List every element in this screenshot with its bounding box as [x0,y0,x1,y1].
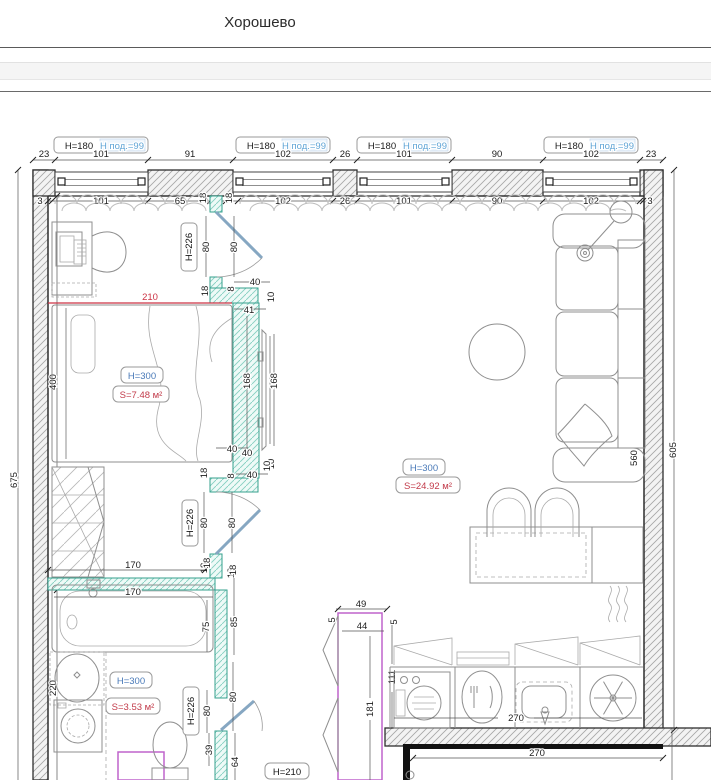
dim-overall-right: 605 [668,442,679,458]
door2-40b: 40 [247,470,258,481]
hall-wardrobe: 49 5 44 5 111 181 [323,599,400,780]
ward-44: 44 [357,621,368,632]
bath-18b: 18 [228,565,239,576]
tub-75: 75 [201,622,212,633]
tub-170: 170 [125,587,141,598]
dim-top: 26 [340,149,351,160]
dim-top: 23 [646,149,657,160]
tv-41: 41 [244,305,255,316]
kitchen-270-inner: 270 [508,713,524,724]
tv-40: 40 [242,448,253,459]
floor-plan-canvas[interactable]: H=180 Н под.=99 H=180 Н под.=99 H=180 Н … [0,0,711,780]
dim-inner: 3 [647,196,652,207]
wc-64: 64 [230,757,241,768]
door2-10: 10 [262,461,273,472]
dim-top: 91 [185,149,196,160]
window-1 [55,172,148,192]
door-wc [221,701,262,731]
desk-area [52,222,126,297]
window-2 [233,172,333,192]
hall-h210: H=210 [273,767,301,778]
sofa-pillow [558,404,612,466]
bath-18a: 18 [202,558,213,569]
bath-85: 85 [229,617,240,628]
dim-top: 102 [275,149,291,160]
door1-80a: 80 [201,242,212,253]
door2-18a: 18 [199,468,210,479]
living-height-label: H=300 [410,463,438,474]
dim-top: 23 [39,149,50,160]
dishwasher [462,671,502,723]
dim-top: 101 [93,149,109,160]
door1-80b: 80 [229,242,240,253]
dim-inner: 18 [224,193,235,204]
tv-168b: 168 [269,373,280,389]
door1-40: 40 [250,277,261,288]
door2-80b: 80 [227,518,238,529]
wc-h226: H=226 [186,697,197,725]
window-h-label: H=180 [555,141,583,152]
folding-door-leaf [323,616,338,686]
dim-overall-left: 675 [9,472,20,488]
dim-top: 101 [396,149,412,160]
wardrobe-bedroom [52,467,104,577]
washing-machine [54,700,102,752]
washbasin [50,652,104,705]
bath-height-label: H=300 [117,676,145,687]
door-bedroom-mid [216,492,260,554]
living-area-label: S=24.92 м² [404,481,452,492]
kitchen: 270 270 [390,636,672,780]
tv-10a: 10 [266,292,277,303]
upper-cabinets [394,636,640,665]
window-h-label: H=180 [65,141,93,152]
dim-top: 102 [583,149,599,160]
dim-living-560: 560 [629,450,640,466]
chair-1 [487,488,531,537]
bath-area-label: S=3.53 м² [112,702,155,713]
radiator [609,586,628,622]
ward-5b: 5 [389,619,400,624]
living-room: H=300 S=24.92 м² [396,201,645,622]
door2-80a: 80 [199,518,210,529]
door2-40a: 40 [227,444,238,455]
sofa [553,214,645,482]
overall-dimensions: 675 400 220 560 605 [9,167,679,780]
dining-table [470,527,643,583]
stove [394,672,450,728]
dim-inner: 18 [198,193,209,204]
dim-inner: 102 [583,196,599,207]
dim-bedroom-400: 400 [48,374,59,390]
window-h-label: H=180 [247,141,275,152]
tv-168a: 168 [242,373,253,389]
dim-top: 90 [492,149,503,160]
ward-49: 49 [356,599,367,610]
door1-h226: H=226 [184,233,195,261]
window-3 [357,172,452,192]
hall-label: H=210 [265,763,414,779]
chair-2 [535,488,579,537]
ward-181: 181 [365,701,376,717]
wc-80a: 80 [202,706,213,717]
kitchen-270-outer: 270 [529,748,545,759]
coffee-table [469,324,525,380]
screenshot-root: { "header": { "title": "Хорошево" }, "pl… [0,0,711,780]
cooker-hood [590,675,636,721]
vanity-cabinet [118,752,164,780]
folding-door-leaf [323,698,338,772]
window-4 [543,172,640,192]
door2-h226: H=226 [185,509,196,537]
door1-18: 18 [200,286,211,297]
bath-wall-170: 170 [125,560,141,571]
wc-39: 39 [204,745,215,756]
ward-5a: 5 [327,617,338,622]
dim-inner: 3 [37,196,42,207]
wardrobe-body [338,613,382,780]
wc-80b: 80 [228,692,239,703]
door2-8: 8 [226,473,237,478]
bedroom-height-label: H=300 [128,371,156,382]
door1-dims: H=226 80 80 18 8 40 [181,216,270,296]
bedroom-area-label: S=7.48 м² [120,390,163,401]
desk-chair [92,232,126,272]
dim-210-red: 210 [142,292,158,303]
window-h-label: H=180 [368,141,396,152]
door1-8: 8 [226,286,237,291]
